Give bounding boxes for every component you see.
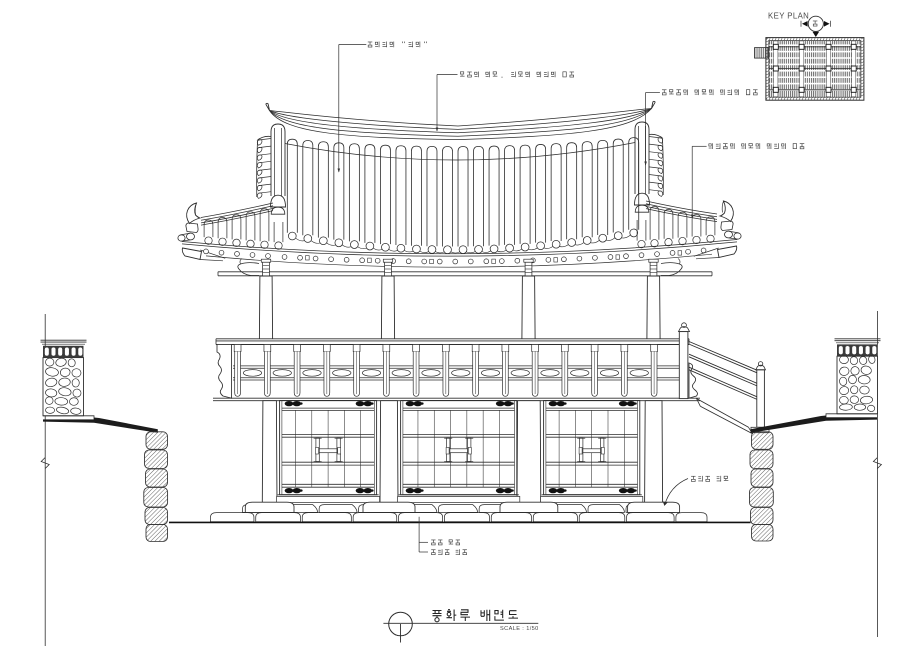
svg-text:SCALE : 1/50: SCALE : 1/50 (500, 626, 539, 632)
svg-text:KEY PLAN: KEY PLAN (768, 12, 809, 21)
